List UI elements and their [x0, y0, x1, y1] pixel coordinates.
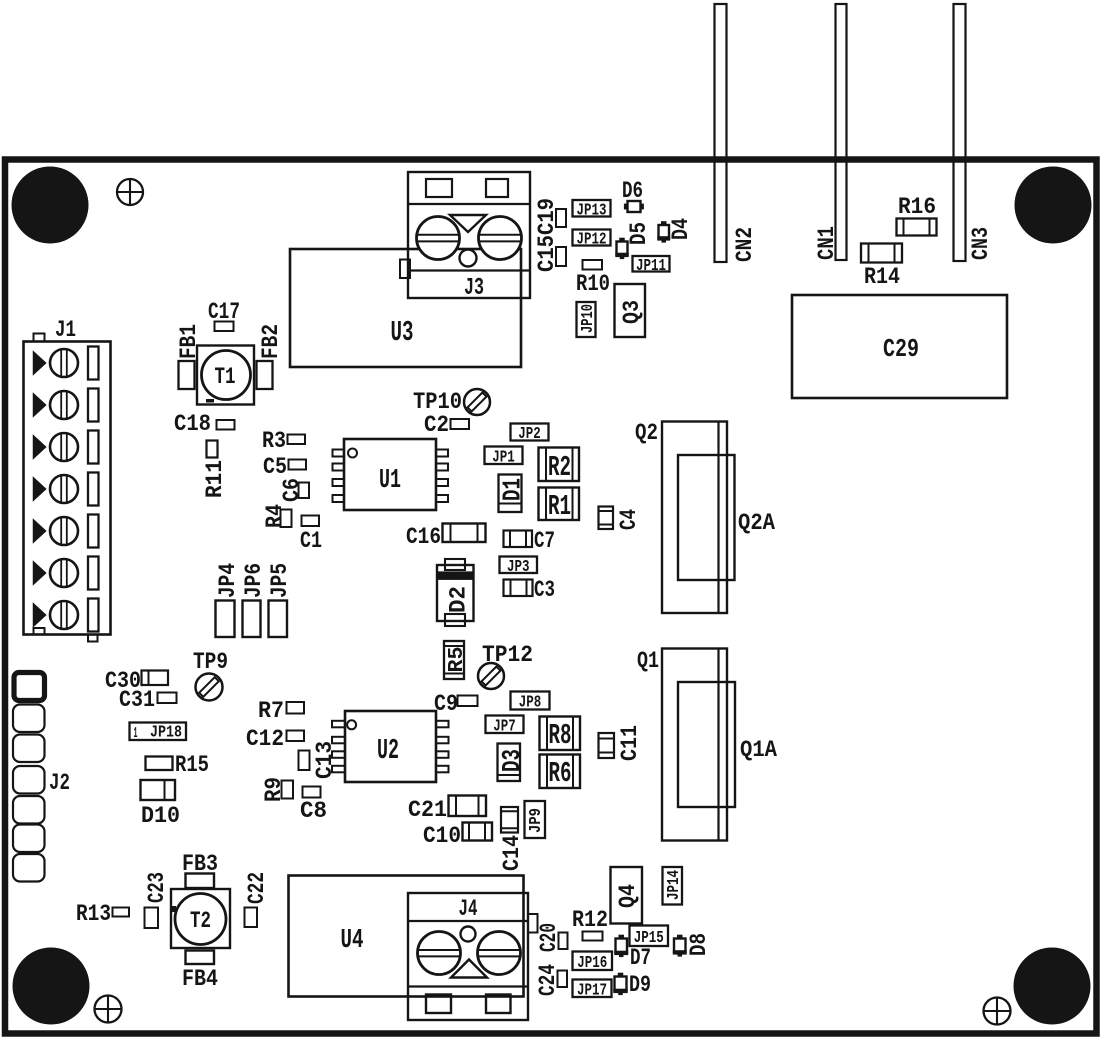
svg-text:D10: D10	[141, 804, 180, 830]
svg-text:R5: R5	[445, 647, 469, 673]
svg-text:C16: C16	[406, 525, 441, 551]
svg-text:J3: J3	[464, 275, 484, 302]
svg-text:JP1: JP1	[492, 448, 515, 467]
svg-text:JP2: JP2	[518, 425, 541, 444]
svg-text:Q1A: Q1A	[740, 738, 778, 764]
svg-text:JP9: JP9	[527, 808, 546, 833]
svg-text:JP8: JP8	[519, 694, 542, 713]
svg-text:R11: R11	[203, 460, 229, 498]
svg-text:C9: C9	[434, 692, 458, 718]
svg-text:CN3: CN3	[969, 227, 995, 260]
svg-text:JP17: JP17	[577, 981, 607, 1000]
svg-text:C2: C2	[424, 413, 449, 439]
svg-text:C13: C13	[313, 741, 339, 779]
svg-text:R8: R8	[549, 719, 572, 752]
svg-text:C3: C3	[534, 578, 555, 604]
svg-text:Q2A: Q2A	[738, 511, 776, 537]
svg-text:Q3: Q3	[620, 300, 646, 324]
svg-text:R7: R7	[258, 699, 284, 725]
svg-text:T1: T1	[215, 364, 236, 390]
svg-text:C10: C10	[423, 824, 461, 850]
svg-text:U3: U3	[391, 316, 414, 349]
svg-text:C29: C29	[883, 335, 919, 364]
svg-text:C18: C18	[174, 412, 211, 438]
svg-text:JP15: JP15	[634, 929, 664, 948]
svg-text:D2: D2	[447, 586, 473, 613]
svg-text:R14: R14	[864, 265, 900, 291]
svg-text:R3: R3	[262, 429, 286, 455]
svg-text:D5: D5	[627, 222, 653, 245]
svg-text:R10: R10	[576, 272, 610, 298]
svg-text:CN2: CN2	[733, 227, 759, 262]
svg-text:R4: R4	[263, 504, 289, 528]
svg-text:TP12: TP12	[482, 643, 533, 669]
svg-text:D3: D3	[498, 749, 527, 772]
svg-text:C31: C31	[119, 688, 155, 714]
svg-text:J2: J2	[49, 771, 70, 797]
svg-text:J1: J1	[55, 318, 76, 344]
svg-text:C14: C14	[500, 835, 526, 871]
svg-text:JP6: JP6	[242, 563, 268, 598]
svg-text:FB2: FB2	[259, 324, 285, 359]
svg-text:U2: U2	[377, 734, 399, 767]
svg-text:T2: T2	[190, 908, 211, 934]
svg-text:D7: D7	[630, 946, 651, 972]
svg-text:D8: D8	[687, 933, 713, 956]
svg-text:C7: C7	[534, 529, 555, 555]
svg-text:C1: C1	[300, 529, 322, 555]
svg-text:R6: R6	[549, 757, 572, 790]
svg-text:JP14: JP14	[665, 870, 684, 900]
svg-text:C11: C11	[618, 725, 644, 761]
svg-text:C23: C23	[145, 872, 171, 903]
svg-text:R1: R1	[548, 490, 571, 523]
svg-text:C8: C8	[300, 799, 327, 825]
svg-text:C21: C21	[408, 798, 447, 824]
svg-text:D1: D1	[499, 478, 528, 501]
svg-text:U1: U1	[379, 466, 401, 496]
svg-text:JP18: JP18	[150, 724, 182, 743]
svg-text:R13: R13	[76, 902, 111, 928]
svg-text:J4: J4	[459, 896, 478, 922]
svg-text:Q1: Q1	[637, 649, 659, 675]
svg-text:C12: C12	[246, 727, 284, 753]
svg-text:JP4: JP4	[216, 563, 242, 598]
svg-text:1: 1	[134, 726, 138, 742]
svg-text:FB1: FB1	[177, 324, 203, 359]
svg-text:JP7: JP7	[493, 717, 516, 736]
svg-text:JP16: JP16	[577, 954, 607, 973]
svg-text:JP5: JP5	[268, 563, 294, 598]
svg-text:CN1: CN1	[815, 226, 841, 260]
svg-text:R15: R15	[175, 753, 209, 779]
svg-text:R12: R12	[572, 908, 608, 934]
svg-text:JP13: JP13	[577, 201, 607, 220]
svg-text:D4: D4	[669, 218, 695, 240]
svg-text:JP10: JP10	[579, 304, 598, 333]
svg-text:U4: U4	[341, 926, 364, 956]
svg-text:D9: D9	[629, 973, 651, 999]
svg-text:C4: C4	[617, 509, 643, 530]
svg-text:JP11: JP11	[636, 257, 666, 276]
svg-text:Q4: Q4	[616, 884, 642, 908]
svg-text:C22: C22	[245, 872, 271, 904]
svg-text:C5: C5	[263, 455, 287, 481]
svg-text:FB4: FB4	[182, 967, 218, 993]
svg-text:JP12: JP12	[577, 231, 607, 250]
svg-text:R16: R16	[898, 195, 936, 221]
svg-text:JP3: JP3	[507, 558, 530, 577]
svg-text:R2: R2	[548, 451, 571, 484]
svg-text:Q2: Q2	[635, 421, 658, 447]
svg-text:TP9: TP9	[193, 650, 228, 676]
